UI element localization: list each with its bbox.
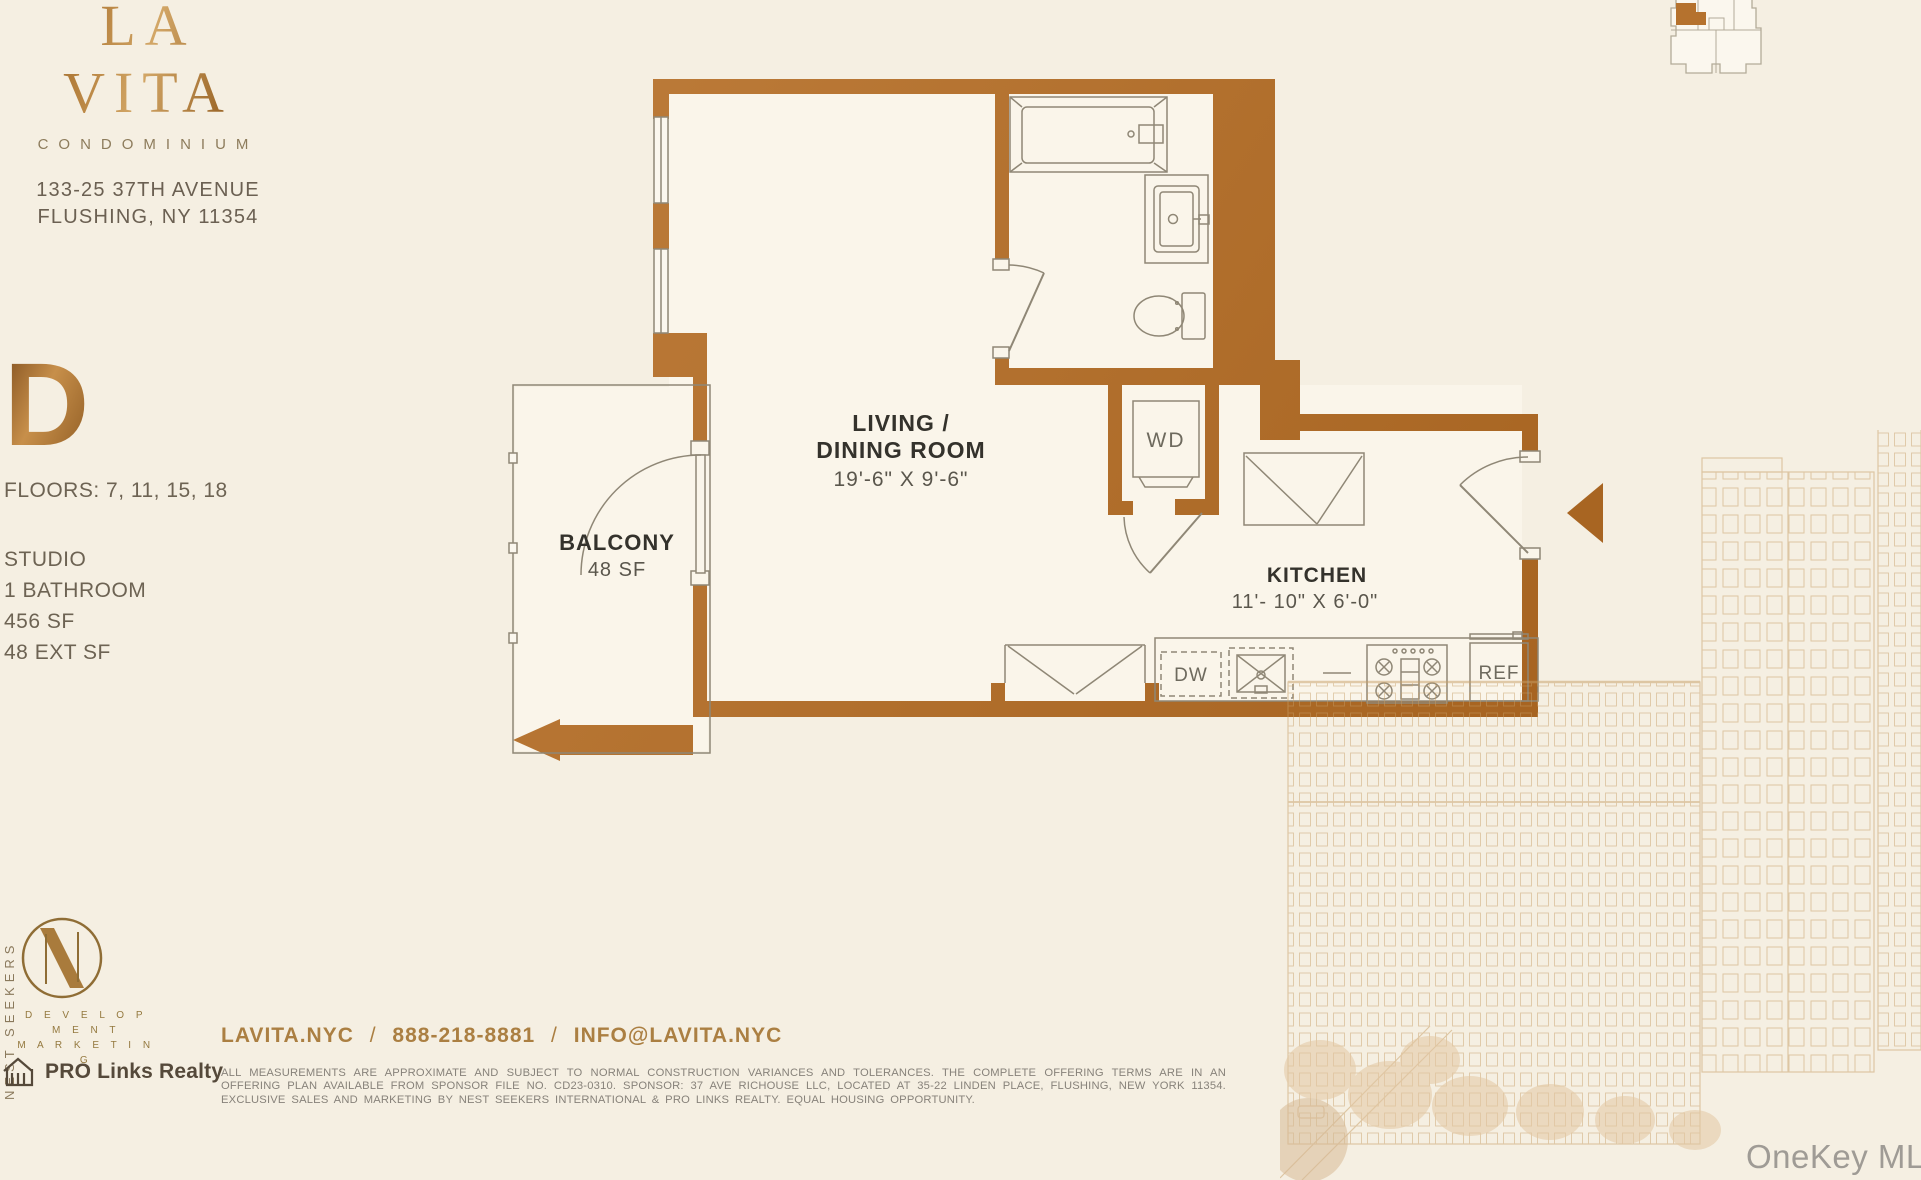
unit-floors: FLOORS: 7, 11, 15, 18 [4,479,228,503]
tower-far-right [1878,430,1921,1050]
living-room-label-2: DINING ROOM [816,437,985,463]
balcony-label: BALCONY [559,530,675,555]
brand-logo: LA VITA [2,0,294,126]
building-illustration [1280,430,1921,1180]
phone-number: 888-218-8881 [392,1024,535,1047]
address-line1: 133-25 37TH AVENUE [2,177,294,204]
contact-line: LAVITA.NYC / 888-218-8881 / INFO@LAVITA.… [221,1024,782,1048]
nest-tagline-line1: D E V E L O P M E N T [16,1008,156,1038]
unit-letter: D [4,346,89,464]
brand-block: LA VITA CONDOMINIUM 133-25 37TH AVENUE F… [2,0,294,231]
website-link: LAVITA.NYC [221,1024,354,1047]
brand-subtitle: CONDOMINIUM [2,136,294,153]
email-link: INFO@LAVITA.NYC [574,1024,783,1047]
mls-watermark: OneKey MLS [1746,1138,1921,1176]
unit-specs: STUDIO 1 BATHROOM 456 SF 48 EXT SF [4,544,146,668]
brand-address: 133-25 37TH AVENUE FLUSHING, NY 11354 [2,177,294,231]
flyer-page: LA VITA CONDOMINIUM 133-25 37TH AVENUE F… [0,0,1921,1180]
separator: / [551,1024,558,1047]
spec-area: 456 SF [4,606,146,637]
address-line2: FLUSHING, NY 11354 [2,204,294,231]
nest-seekers-logo [20,916,104,1000]
living-room-label-1: LIVING / [852,410,949,436]
spec-ext-area: 48 EXT SF [4,637,146,668]
wd-label: WD [1147,429,1186,452]
window [654,117,668,203]
dw-label: DW [1174,665,1208,686]
pro-links-label: PRO Links Realty [45,1060,223,1084]
spec-type: STUDIO [4,544,146,575]
house-icon [2,1056,38,1088]
living-room-dims: 19'-6" X 9'-6" [834,468,969,491]
window [654,249,668,333]
key-plan [1668,0,1768,84]
pro-links-logo: PRO Links Realty [2,1056,223,1088]
legal-disclaimer: ALL MEASUREMENTS ARE APPROXIMATE AND SUB… [221,1067,1226,1107]
separator: / [370,1024,377,1047]
balcony-area: 48 SF [588,559,646,581]
spec-bathrooms: 1 BATHROOM [4,575,146,606]
